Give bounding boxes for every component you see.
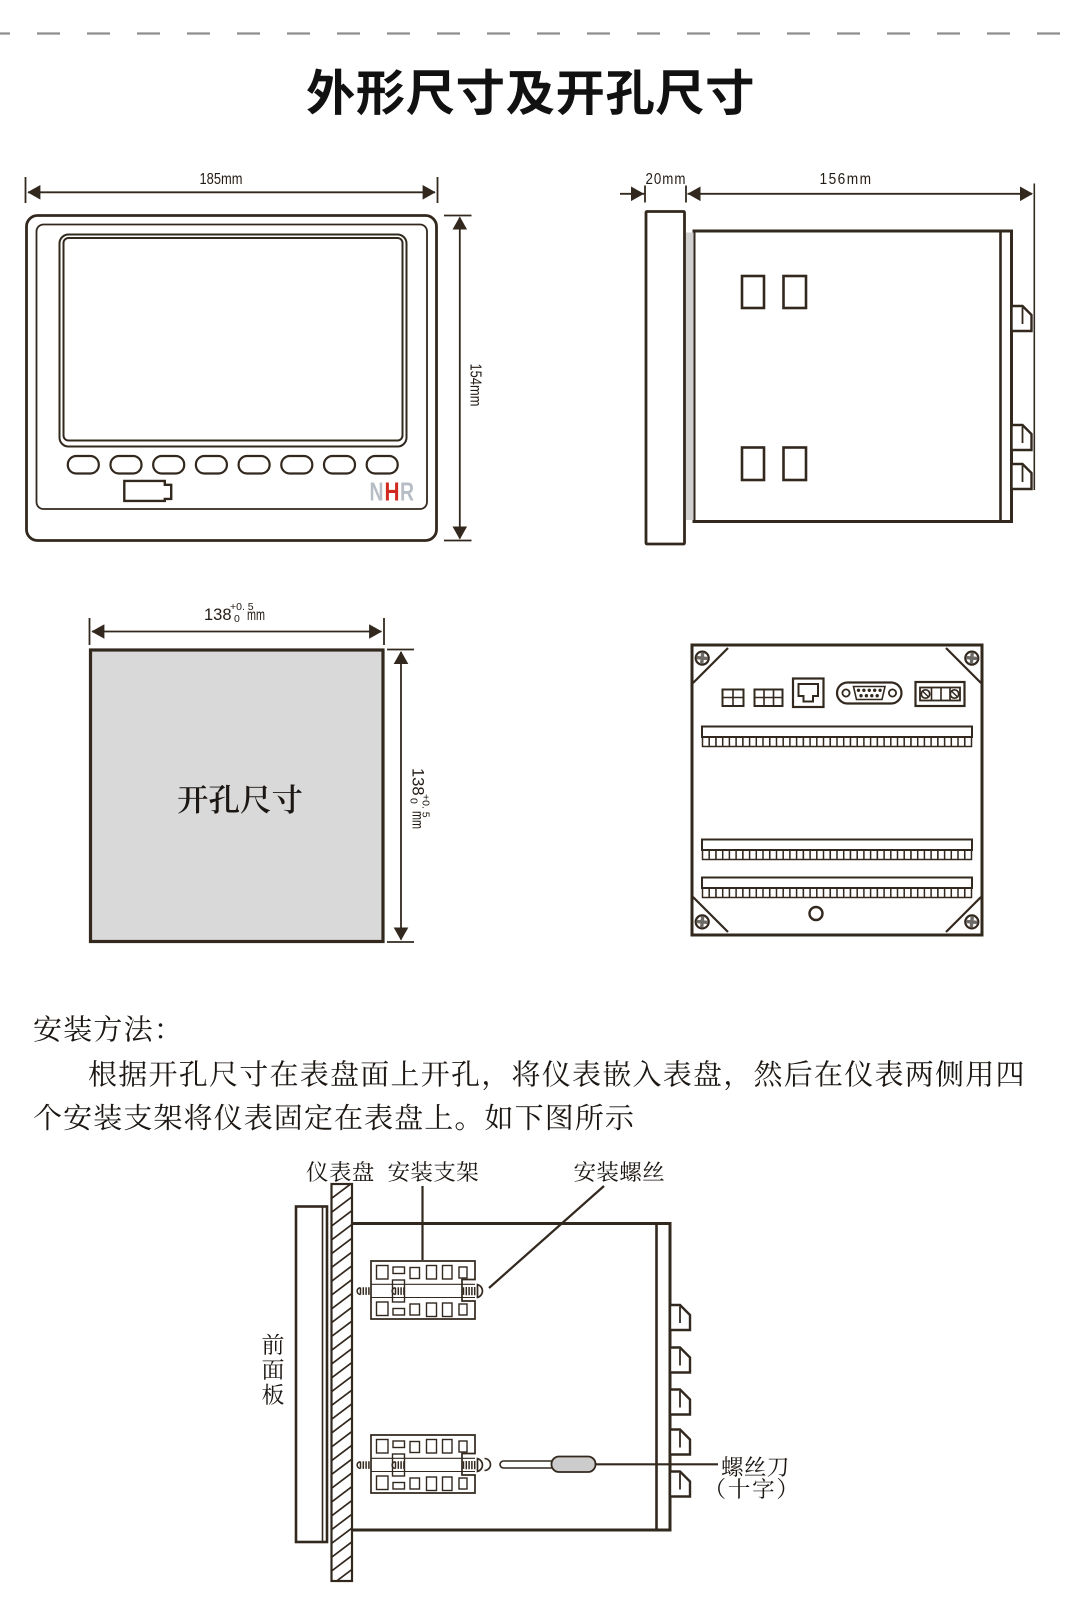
svg-text:154mm: 154mm xyxy=(467,364,484,407)
svg-text:0: 0 xyxy=(408,798,420,804)
svg-text:138: 138 xyxy=(204,606,232,624)
svg-text:N: N xyxy=(370,477,384,507)
svg-text:20mm: 20mm xyxy=(646,171,687,188)
svg-text:H: H xyxy=(385,477,400,507)
svg-text:mm: mm xyxy=(247,607,265,624)
svg-text:185mm: 185mm xyxy=(200,171,243,188)
svg-text:R: R xyxy=(400,477,414,507)
svg-text:mm: mm xyxy=(409,811,426,829)
svg-text:138: 138 xyxy=(409,768,427,796)
svg-text:156mm: 156mm xyxy=(820,171,873,188)
svg-text:0: 0 xyxy=(234,613,240,625)
